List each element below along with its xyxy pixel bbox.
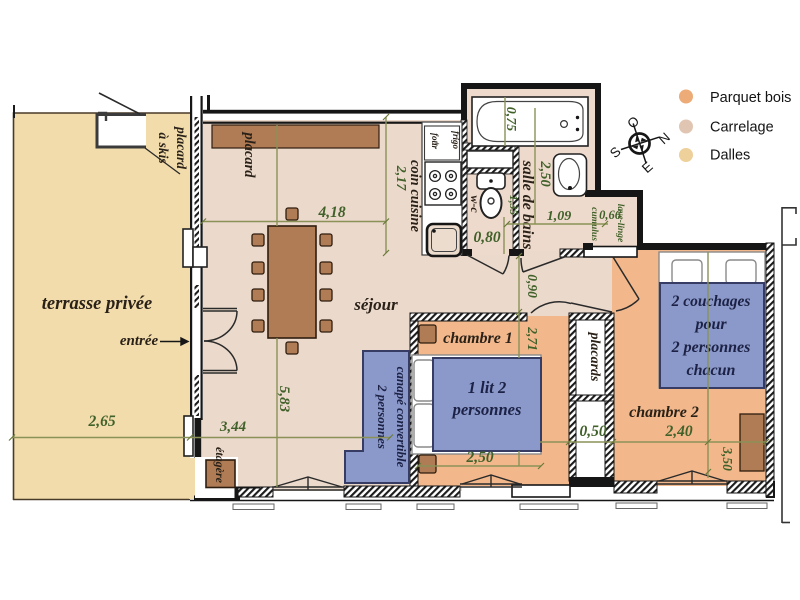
svg-text:0,90: 0,90	[525, 274, 540, 298]
svg-text:2,50: 2,50	[537, 160, 553, 186]
svg-text:4,18: 4,18	[317, 204, 345, 221]
svg-text:chacun: chacun	[687, 362, 736, 379]
svg-text:placard: placard	[174, 126, 189, 169]
svg-text:0,75: 0,75	[503, 107, 518, 132]
svg-text:0,66: 0,66	[599, 208, 622, 222]
svg-text:2,17: 2,17	[393, 165, 408, 192]
svg-text:+: +	[434, 139, 439, 149]
svg-text:canapé convertible: canapé convertible	[394, 367, 409, 468]
svg-text:chambre 2: chambre 2	[629, 404, 699, 421]
svg-text:Parquet bois: Parquet bois	[710, 90, 791, 106]
svg-text:coin cuisine: coin cuisine	[407, 160, 423, 233]
svg-text:entrée: entrée	[120, 333, 159, 349]
svg-text:à skis: à skis	[156, 132, 171, 163]
svg-text:pour: pour	[693, 316, 727, 333]
svg-text:1 lit 2: 1 lit 2	[468, 378, 507, 397]
svg-text:frigo: frigo	[451, 131, 461, 150]
svg-text:placard: placard	[241, 130, 257, 178]
svg-text:2 couchages: 2 couchages	[671, 293, 751, 310]
svg-text:2,50: 2,50	[465, 449, 493, 466]
svg-text:Dalles: Dalles	[710, 148, 750, 164]
svg-text:placards: placards	[587, 332, 602, 383]
svg-text:2,65: 2,65	[87, 413, 115, 430]
svg-text:Carrelage: Carrelage	[710, 120, 774, 136]
svg-text:2 personnes: 2 personnes	[671, 339, 751, 356]
svg-text:5,83: 5,83	[276, 386, 292, 413]
svg-text:2,40: 2,40	[664, 423, 692, 440]
svg-text:0,50: 0,50	[579, 423, 606, 440]
svg-text:séjour: séjour	[353, 295, 398, 314]
svg-text:étagère: étagère	[213, 447, 227, 484]
svg-text:3,44: 3,44	[219, 419, 247, 435]
svg-text:terrasse privée: terrasse privée	[42, 294, 152, 314]
svg-text:3,50: 3,50	[720, 446, 735, 471]
svg-text:personnes: personnes	[451, 400, 522, 419]
svg-text:0,80: 0,80	[473, 229, 500, 246]
svg-text:w-c: w-c	[468, 195, 482, 213]
svg-text:1,35: 1,35	[507, 195, 519, 215]
svg-text:chambre 1: chambre 1	[443, 330, 513, 347]
svg-text:salle de bains: salle de bains	[519, 160, 536, 250]
svg-text:2,71: 2,71	[525, 326, 540, 351]
svg-text:1,09: 1,09	[547, 209, 572, 224]
